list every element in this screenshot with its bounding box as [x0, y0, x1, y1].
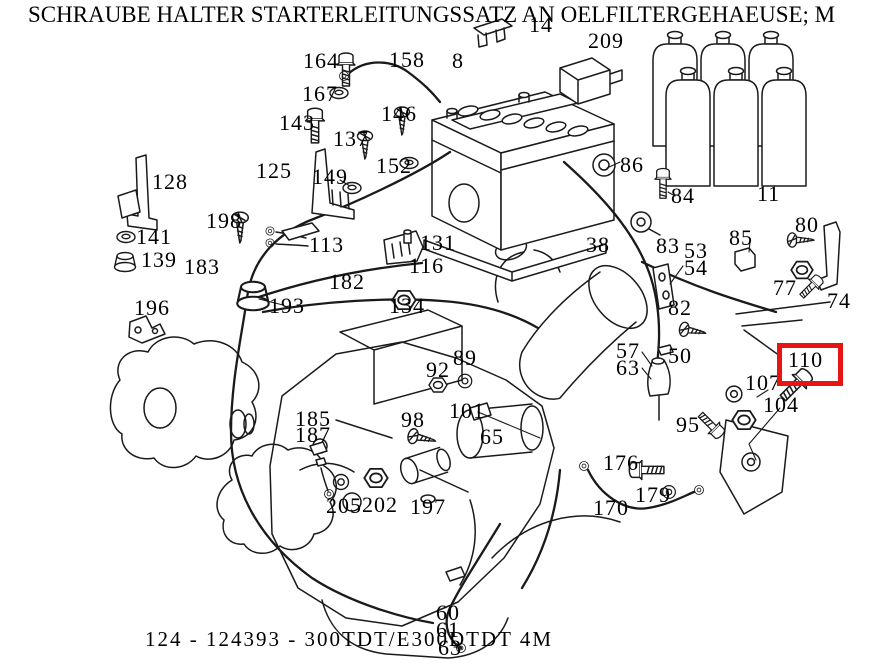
part-label-85[interactable]: 85 [729, 227, 753, 249]
part-label-158[interactable]: 158 [389, 49, 425, 71]
part-label-179[interactable]: 179 [635, 484, 671, 506]
part-label-77[interactable]: 77 [773, 277, 797, 299]
part-label-198[interactable]: 198 [206, 210, 242, 232]
parts-diagram-drawing [0, 0, 882, 665]
part-label-176[interactable]: 176 [603, 452, 639, 474]
page-title: SCHRAUBE HALTER STARTERLEITUNGSSATZ AN O… [28, 2, 835, 28]
part-label-89[interactable]: 89 [453, 347, 477, 369]
part-label-146[interactable]: 146 [381, 103, 417, 125]
part-label-128[interactable]: 128 [152, 171, 188, 193]
part-label-11[interactable]: 11 [757, 183, 780, 205]
nut-icon [364, 469, 387, 487]
part-label-95[interactable]: 95 [676, 414, 700, 436]
part-label-65[interactable]: 65 [480, 426, 504, 448]
part-label-167[interactable]: 167 [302, 83, 338, 105]
ring-icon [726, 386, 742, 402]
part-label-63[interactable]: 63 [616, 357, 640, 379]
part-label-74[interactable]: 74 [827, 290, 851, 312]
nut-icon [732, 411, 755, 429]
part-label-202[interactable]: 202 [362, 494, 398, 516]
part-label-182[interactable]: 182 [329, 271, 365, 293]
footer-caption: 124 - 124393 - 300TDT/E300DTDT 4M [145, 627, 553, 652]
part-label-101[interactable]: 101 [449, 400, 485, 422]
part-label-113[interactable]: 113 [309, 234, 344, 256]
screw-icon [678, 321, 707, 340]
part-label-205[interactable]: 205 [326, 495, 362, 517]
part-label-54[interactable]: 54 [684, 257, 708, 279]
part-label-196[interactable]: 196 [134, 297, 170, 319]
part-label-104[interactable]: 104 [763, 394, 799, 416]
part-label-107[interactable]: 107 [745, 372, 781, 394]
part-label-86[interactable]: 86 [620, 154, 644, 176]
ring-terminal-icon [695, 486, 704, 495]
washer-icon [117, 232, 135, 243]
part-label-8[interactable]: 8 [452, 50, 464, 72]
oil-canisters-illustration [653, 32, 806, 187]
part-label-197[interactable]: 197 [410, 496, 446, 518]
part-label-137[interactable]: 137 [333, 128, 369, 150]
part-label-139[interactable]: 139 [141, 249, 177, 271]
part-label-50[interactable]: 50 [668, 345, 692, 367]
part-label-209[interactable]: 209 [588, 30, 624, 52]
part-label-164[interactable]: 164 [303, 50, 339, 72]
part-label-143[interactable]: 143 [279, 112, 315, 134]
part-label-116[interactable]: 116 [409, 255, 444, 277]
part-label-131[interactable]: 131 [420, 232, 456, 254]
ring-terminal-icon [580, 462, 589, 471]
parts-diagram-page: SCHRAUBE HALTER STARTERLEITUNGSSATZ AN O… [0, 0, 882, 665]
part-label-14[interactable]: 14 [529, 14, 553, 36]
part-label-193[interactable]: 193 [269, 295, 305, 317]
part-label-83[interactable]: 83 [656, 235, 680, 257]
part-label-125[interactable]: 125 [256, 160, 292, 182]
part-label-134[interactable]: 134 [389, 295, 425, 317]
grommet-icon [115, 253, 136, 272]
relay-illustration [560, 58, 622, 104]
part-label-84[interactable]: 84 [671, 185, 695, 207]
part-label-80[interactable]: 80 [795, 214, 819, 236]
part-label-187[interactable]: 187 [295, 424, 331, 446]
part-label-82[interactable]: 82 [668, 297, 692, 319]
part-label-183[interactable]: 183 [184, 256, 220, 278]
part-label-98[interactable]: 98 [401, 409, 425, 431]
part-label-38[interactable]: 38 [586, 234, 610, 256]
part-label-92[interactable]: 92 [426, 359, 450, 381]
part-label-149[interactable]: 149 [312, 166, 348, 188]
part-label-110[interactable]: 110 [788, 349, 823, 371]
ring-terminal-icon [266, 227, 274, 235]
part-label-141[interactable]: 141 [136, 226, 172, 248]
part-label-170[interactable]: 170 [593, 497, 629, 519]
part-label-152[interactable]: 152 [376, 155, 412, 177]
